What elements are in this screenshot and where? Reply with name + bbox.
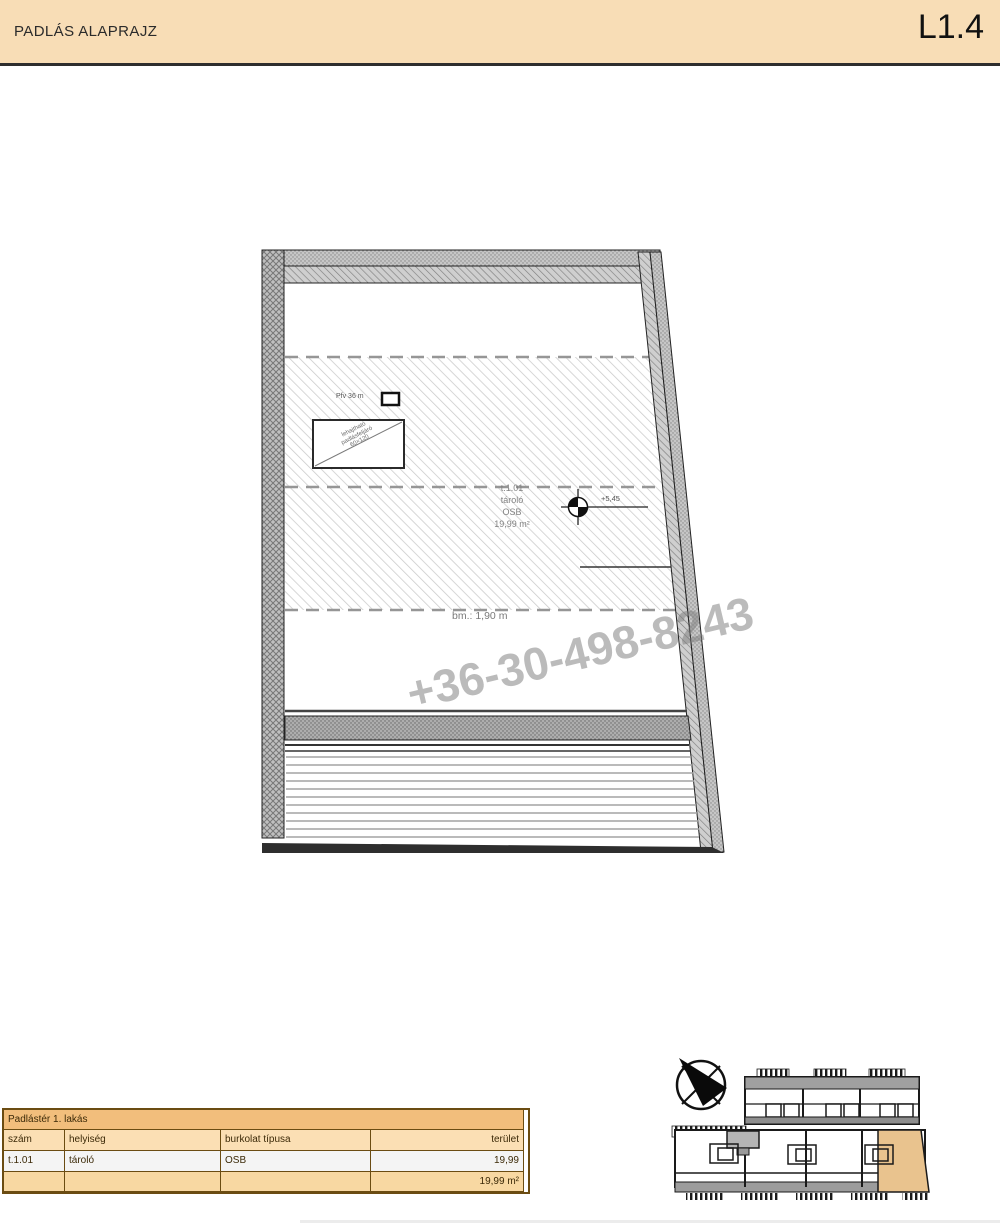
total-row-spacer-1 bbox=[4, 1172, 65, 1192]
column-header-area: terület bbox=[371, 1130, 524, 1151]
room-schedule-table: Padlástér 1. lakás szám helyiség burkola… bbox=[2, 1108, 530, 1194]
column-header-number: szám bbox=[4, 1130, 65, 1151]
total-area-cell: 19,99 m² bbox=[371, 1172, 524, 1192]
cell-room-finish: OSB bbox=[221, 1151, 371, 1172]
total-row-spacer-3 bbox=[221, 1172, 371, 1192]
mid-wall-band bbox=[285, 711, 691, 751]
plan-interior bbox=[284, 264, 707, 846]
total-row-spacer-2 bbox=[65, 1172, 221, 1192]
room-label: t.1.01 tároló OSB 19,99 m² bbox=[476, 482, 548, 530]
cell-room-name: tároló bbox=[65, 1151, 221, 1172]
roof-window-label: Pfv 36 m bbox=[336, 393, 364, 400]
room-number: t.1.01 bbox=[476, 482, 548, 494]
roof-window-icon bbox=[382, 393, 399, 405]
wall-top-outer bbox=[262, 250, 661, 266]
north-arrow-icon bbox=[677, 1058, 727, 1109]
cell-room-area: 19,99 bbox=[371, 1151, 524, 1172]
room-name: tároló bbox=[476, 494, 548, 506]
wall-left bbox=[262, 250, 284, 838]
column-header-room: helyiség bbox=[65, 1130, 221, 1151]
wall-top-inner bbox=[284, 266, 642, 283]
title-block-edge bbox=[300, 1220, 1000, 1223]
room-area: 19,99 m² bbox=[476, 518, 548, 530]
table-title: Padlástér 1. lakás bbox=[4, 1110, 524, 1130]
column-header-finish: burkolat típusa bbox=[221, 1130, 371, 1151]
cell-room-number: t.1.01 bbox=[4, 1151, 65, 1172]
clear-height-note: bm.: 1,90 m bbox=[452, 610, 507, 622]
level-marker-value: +5,45 bbox=[601, 494, 620, 503]
room-surface: OSB bbox=[476, 506, 548, 518]
